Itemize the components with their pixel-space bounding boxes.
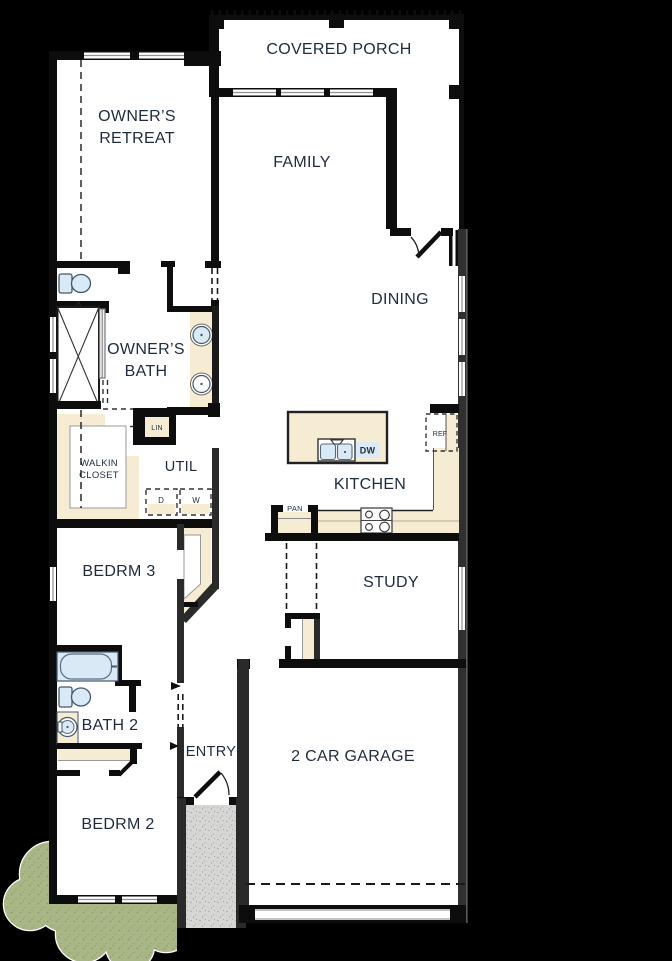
svg-text:2 CAR GARAGE: 2 CAR GARAGE: [291, 748, 415, 765]
svg-text:KITCHEN: KITCHEN: [334, 476, 406, 493]
svg-text:OWNER’S: OWNER’S: [107, 341, 185, 358]
svg-text:COVERED PORCH: COVERED PORCH: [266, 41, 411, 58]
svg-text:DW: DW: [360, 446, 376, 456]
svg-text:ENTRY: ENTRY: [186, 744, 236, 760]
svg-text:REF: REF: [433, 431, 448, 438]
svg-text:D: D: [158, 496, 164, 505]
svg-text:PAN: PAN: [287, 504, 303, 513]
svg-text:LIN: LIN: [151, 425, 163, 432]
svg-text:DINING: DINING: [371, 291, 429, 308]
svg-text:BEDRM 2: BEDRM 2: [81, 816, 154, 833]
svg-text:FAMILY: FAMILY: [273, 154, 331, 171]
svg-text:STUDY: STUDY: [363, 574, 419, 591]
svg-text:OWNER’S: OWNER’S: [98, 108, 176, 125]
svg-text:BATH: BATH: [125, 363, 168, 380]
svg-text:BATH 2: BATH 2: [82, 717, 139, 734]
svg-text:UTIL: UTIL: [165, 459, 198, 475]
svg-text:BEDRM 3: BEDRM 3: [82, 563, 155, 580]
svg-text:RETREAT: RETREAT: [99, 130, 175, 147]
svg-text:CLOSET: CLOSET: [79, 470, 119, 481]
svg-text:W: W: [192, 496, 200, 505]
svg-text:WALKIN: WALKIN: [80, 458, 118, 469]
